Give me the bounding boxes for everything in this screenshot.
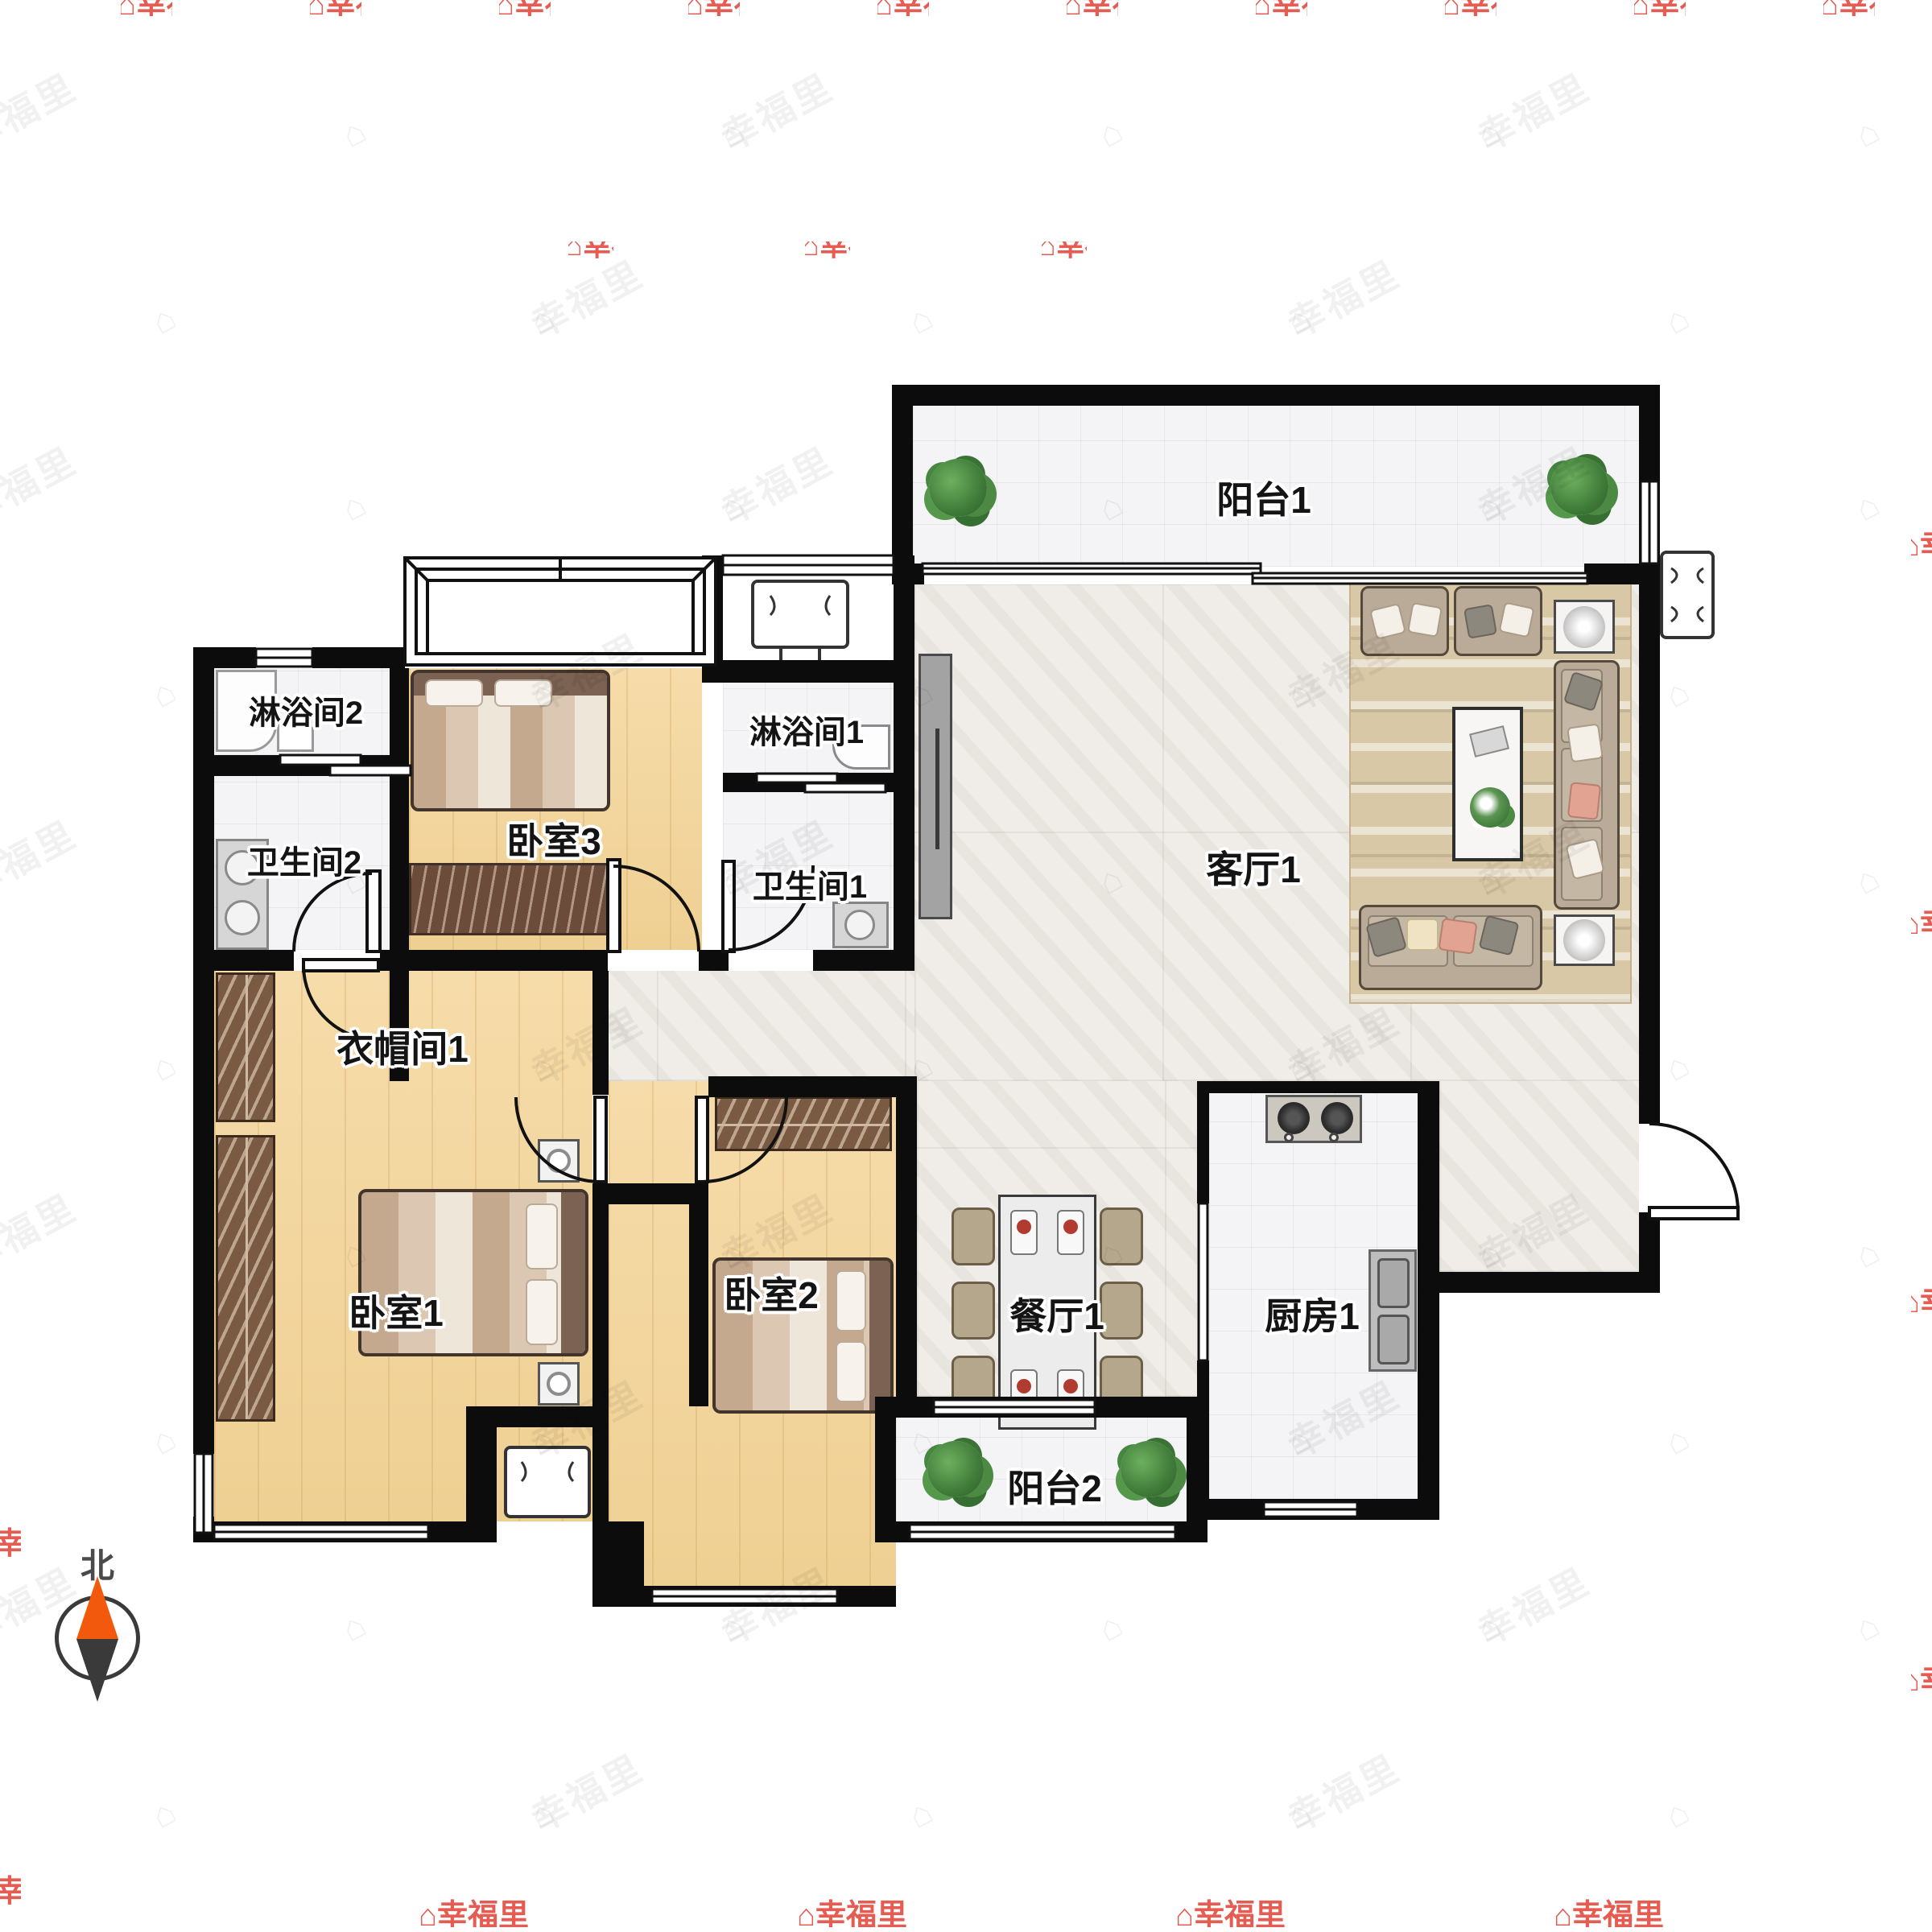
- watermark-house-icon: ⌂: [1848, 484, 1886, 530]
- watermark-house-icon: ⌂: [713, 857, 751, 903]
- watermark-house-icon: ⌂: [713, 484, 751, 530]
- watermark-text: 幸福里: [0, 431, 85, 535]
- watermark-house-icon: ⌂: [713, 1231, 751, 1277]
- watermark-text: 幸福里: [521, 992, 652, 1096]
- watermark-red-fragment: ⌂幸福里: [499, 0, 551, 16]
- watermark-text: 幸福里: [1278, 992, 1409, 1096]
- watermark-text: 幸福里: [711, 1179, 842, 1282]
- watermark-house-icon: ⌂: [1280, 1044, 1318, 1090]
- watermark-house-icon: ⌂: [1658, 671, 1696, 716]
- watermark-red-fragment: ⌂幸福里: [805, 242, 850, 259]
- watermark-house-icon: ⌂: [1280, 297, 1318, 343]
- watermark-house-icon: ⌂: [1092, 857, 1129, 903]
- watermark-house-icon: ⌂: [523, 1044, 561, 1090]
- watermark-text: 幸福里: [521, 1739, 652, 1843]
- watermark-house-icon: ⌂: [1092, 1604, 1129, 1650]
- watermark-house-icon: ⌂: [1280, 1791, 1318, 1837]
- watermark-house-icon: ⌂: [1092, 1231, 1129, 1277]
- watermark-text: 幸福里: [1278, 1365, 1409, 1469]
- watermark-text: 幸福里: [711, 1926, 842, 1932]
- watermark-text: 幸福里: [521, 245, 652, 349]
- watermark-red-fragment: ⌂幸福里: [1445, 0, 1496, 16]
- watermark-text: 幸福里: [711, 431, 842, 535]
- watermark-house-icon: ⌂: [902, 671, 939, 716]
- watermark-red-fragment: ⌂幸福里: [877, 0, 929, 16]
- watermark-house-icon: ⌂: [1280, 671, 1318, 716]
- watermark-house-icon: ⌂: [1092, 110, 1129, 156]
- watermark-red-fragment: ⌂幸福里: [0, 1861, 21, 1913]
- watermark-text: 幸福里: [711, 1552, 842, 1656]
- watermark-text: 幸福里: [1278, 618, 1409, 722]
- watermark-house-icon: ⌂: [145, 1044, 183, 1090]
- watermark-layer: ⌂⌂幸福里⌂⌂幸福里⌂⌂幸福里⌂⌂幸福里⌂⌂幸福里⌂⌂⌂幸福里⌂⌂幸福里⌂⌂幸福…: [0, 0, 1932, 1932]
- watermark-text: 幸福里: [1278, 1739, 1409, 1843]
- watermark-red-fragment: ⌂幸福里: [1911, 1650, 1932, 1702]
- watermark-red-fragment: ⌂幸福里: [1634, 0, 1686, 16]
- watermark-house-icon: ⌂: [145, 1791, 183, 1837]
- watermark-house-icon: ⌂: [1470, 484, 1508, 530]
- watermark-house-icon: ⌂: [335, 110, 373, 156]
- watermark-text: 幸福里: [0, 1179, 85, 1282]
- watermark-text: 幸福里: [1468, 58, 1599, 162]
- watermark-red-fragment: ⌂幸福里: [1256, 0, 1307, 16]
- watermark-house-icon: ⌂: [523, 1791, 561, 1837]
- watermark-house-icon: ⌂: [1848, 857, 1886, 903]
- watermark-text: 幸福里: [1468, 1552, 1599, 1656]
- watermark-red-fragment: ⌂幸福里: [1911, 515, 1932, 567]
- watermark-red-fragment: ⌂幸福里: [1067, 0, 1118, 16]
- watermark-house-icon: ⌂: [902, 1791, 939, 1837]
- watermark-text: 幸福里: [0, 1926, 85, 1932]
- watermark-house-icon: ⌂: [523, 1418, 561, 1463]
- watermark-house-icon: ⌂: [1848, 1231, 1886, 1277]
- watermark-red-fragment: ⌂幸福里: [1554, 1890, 1674, 1927]
- watermark-red-fragment: ⌂幸福里: [688, 0, 740, 16]
- watermark-house-icon: ⌂: [1470, 110, 1508, 156]
- watermark-house-icon: ⌂: [1848, 110, 1886, 156]
- watermark-house-icon: ⌂: [902, 1418, 939, 1463]
- watermark-red-fragment: ⌂幸福里: [1911, 894, 1932, 945]
- watermark-house-icon: ⌂: [1470, 857, 1508, 903]
- watermark-red-fragment: ⌂幸福里: [1042, 242, 1087, 259]
- watermark-text: 幸福里: [711, 58, 842, 162]
- watermark-house-icon: ⌂: [335, 857, 373, 903]
- floor-plan: 阳台1 淋浴间2 卫生间2 卧室3 淋浴间1 卫生间1 客厅1 衣帽间1 卧室1…: [0, 0, 1932, 1932]
- watermark-house-icon: ⌂: [335, 1604, 373, 1650]
- watermark-text: 幸福里: [521, 618, 652, 722]
- watermark-red-fragment: ⌂幸福里: [797, 1890, 918, 1927]
- watermark-house-icon: ⌂: [523, 297, 561, 343]
- watermark-red-fragment: ⌂幸福里: [1911, 1272, 1932, 1323]
- watermark-house-icon: ⌂: [1470, 1604, 1508, 1650]
- watermark-house-icon: ⌂: [1470, 1231, 1508, 1277]
- watermark-red-fragment: ⌂幸福里: [568, 242, 613, 259]
- watermark-house-icon: ⌂: [1280, 1418, 1318, 1463]
- watermark-red-fragment: ⌂幸福里: [419, 1890, 539, 1927]
- watermark-text: 幸福里: [1468, 431, 1599, 535]
- watermark-house-icon: ⌂: [1848, 1604, 1886, 1650]
- watermark-house-icon: ⌂: [335, 484, 373, 530]
- watermark-house-icon: ⌂: [145, 1418, 183, 1463]
- watermark-red-fragment: ⌂幸福里: [310, 0, 361, 16]
- watermark-text: 幸福里: [0, 1552, 85, 1656]
- watermark-house-icon: ⌂: [145, 297, 183, 343]
- watermark-house-icon: ⌂: [145, 671, 183, 716]
- watermark-house-icon: ⌂: [1092, 484, 1129, 530]
- watermark-house-icon: ⌂: [1658, 1791, 1696, 1837]
- watermark-house-icon: ⌂: [713, 1604, 751, 1650]
- watermark-text: 幸福里: [0, 58, 85, 162]
- watermark-house-icon: ⌂: [902, 297, 939, 343]
- watermark-house-icon: ⌂: [335, 1231, 373, 1277]
- watermark-house-icon: ⌂: [902, 1044, 939, 1090]
- watermark-text: 幸福里: [521, 1365, 652, 1469]
- watermark-text: 幸福里: [0, 805, 85, 909]
- watermark-house-icon: ⌂: [1658, 1044, 1696, 1090]
- watermark-text: 幸福里: [1278, 245, 1409, 349]
- watermark-house-icon: ⌂: [1658, 297, 1696, 343]
- watermark-text: 幸福里: [711, 805, 842, 909]
- watermark-house-icon: ⌂: [713, 110, 751, 156]
- watermark-red-fragment: ⌂幸福里: [1175, 1890, 1296, 1927]
- watermark-text: 幸福里: [1468, 1179, 1599, 1282]
- watermark-text: 幸福里: [1468, 805, 1599, 909]
- watermark-text: 幸福里: [1468, 1926, 1599, 1932]
- watermark-red-fragment: ⌂幸福里: [0, 1513, 21, 1565]
- watermark-house-icon: ⌂: [523, 671, 561, 716]
- watermark-red-fragment: ⌂幸福里: [1823, 0, 1875, 16]
- watermark-red-fragment: ⌂幸福里: [121, 0, 172, 16]
- watermark-house-icon: ⌂: [1658, 1418, 1696, 1463]
